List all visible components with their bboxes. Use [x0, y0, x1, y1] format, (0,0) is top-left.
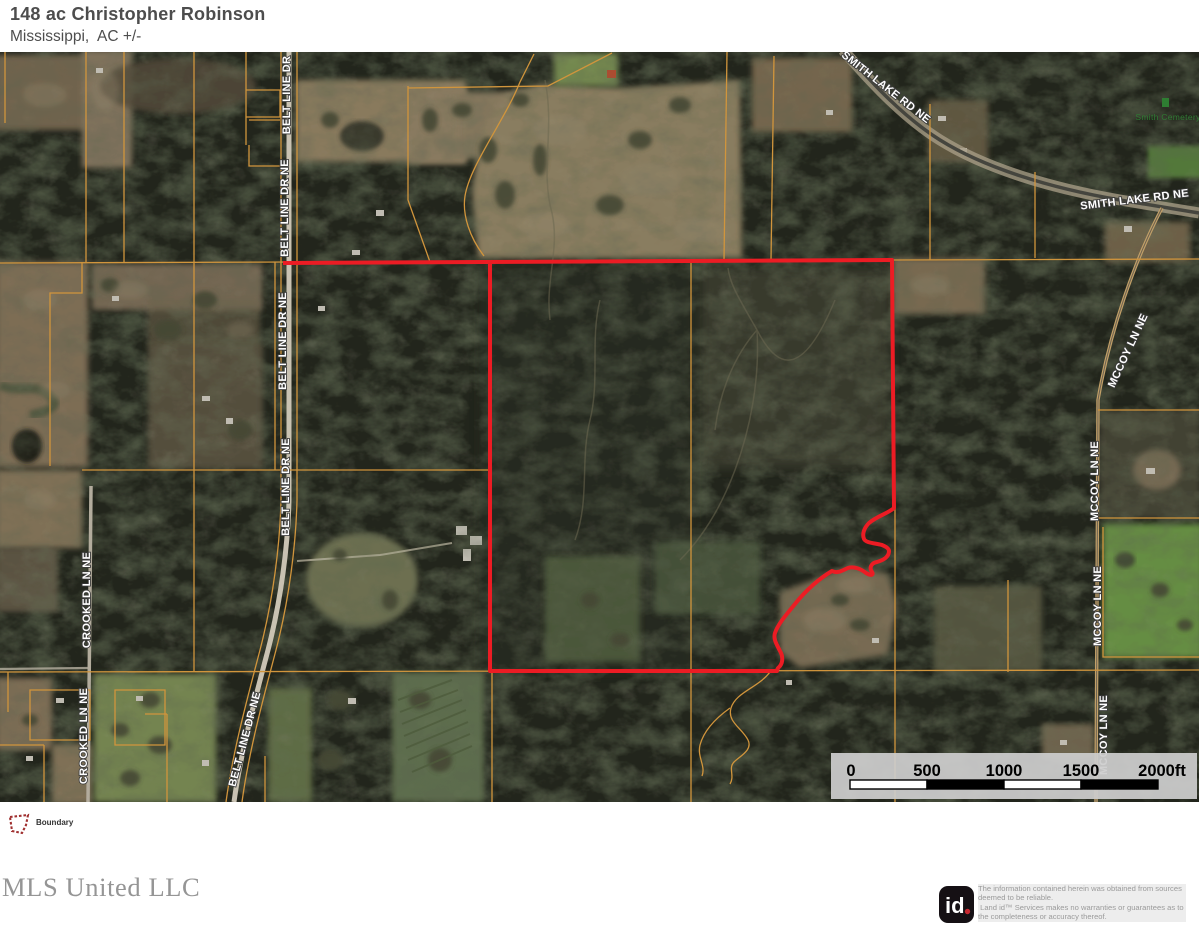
svg-text:2000ft: 2000ft	[1138, 762, 1186, 780]
svg-text:Smith Cemetery: Smith Cemetery	[1135, 112, 1199, 122]
svg-text:0: 0	[846, 762, 855, 780]
svg-text:MCCOY LN NE: MCCOY LN NE	[1092, 566, 1104, 646]
svg-text:CROOKED LN NE: CROOKED LN NE	[78, 688, 90, 784]
svg-text:BELT LINE DR NE: BELT LINE DR NE	[277, 292, 289, 390]
svg-text:1500: 1500	[1063, 762, 1100, 780]
svg-text:id: id	[945, 893, 965, 918]
svg-text:BELT LINE DR NE: BELT LINE DR NE	[279, 159, 291, 257]
svg-text:1000: 1000	[986, 762, 1023, 780]
svg-text:CROOKED LN NE: CROOKED LN NE	[81, 552, 93, 648]
svg-text:500: 500	[913, 762, 941, 780]
svg-text:MCCOY LN NE: MCCOY LN NE	[1089, 441, 1101, 521]
svg-text:BELT LINE DR: BELT LINE DR	[281, 56, 293, 135]
svg-text:BELT LINE DR NE: BELT LINE DR NE	[280, 438, 292, 536]
